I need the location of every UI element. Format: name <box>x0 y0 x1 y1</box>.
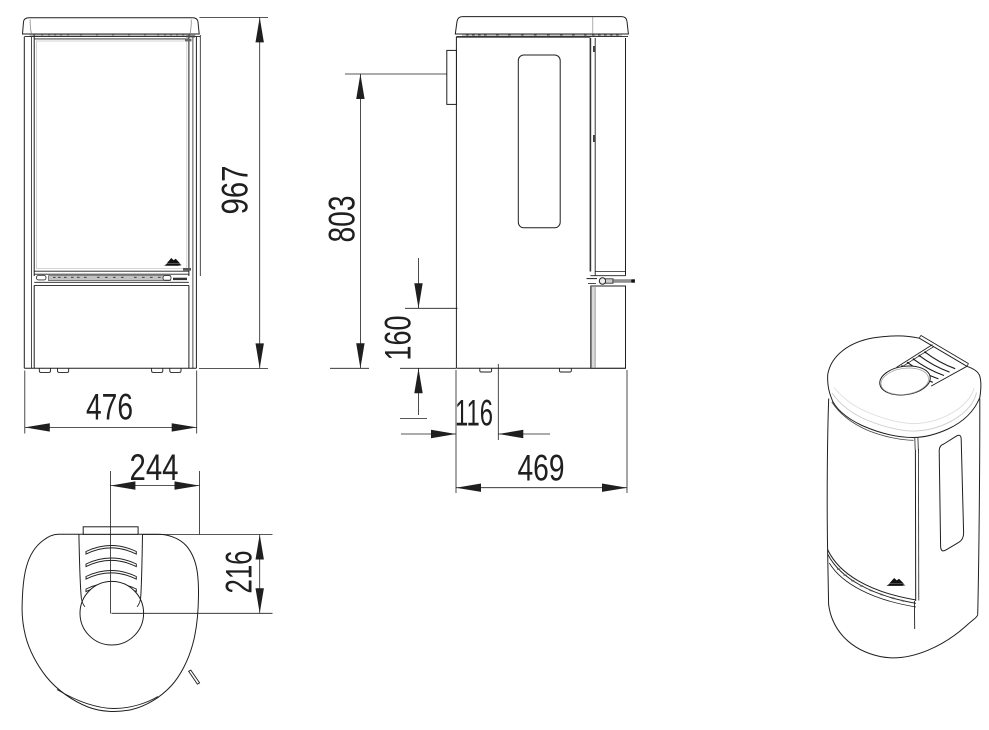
svg-text:244: 244 <box>130 447 179 488</box>
svg-text:469: 469 <box>518 448 565 489</box>
svg-text:216: 216 <box>219 551 260 594</box>
svg-text:803: 803 <box>322 196 363 243</box>
svg-text:160: 160 <box>378 316 419 361</box>
svg-text:116: 116 <box>455 393 493 434</box>
svg-text:476: 476 <box>86 387 133 428</box>
svg-text:967: 967 <box>215 166 256 215</box>
